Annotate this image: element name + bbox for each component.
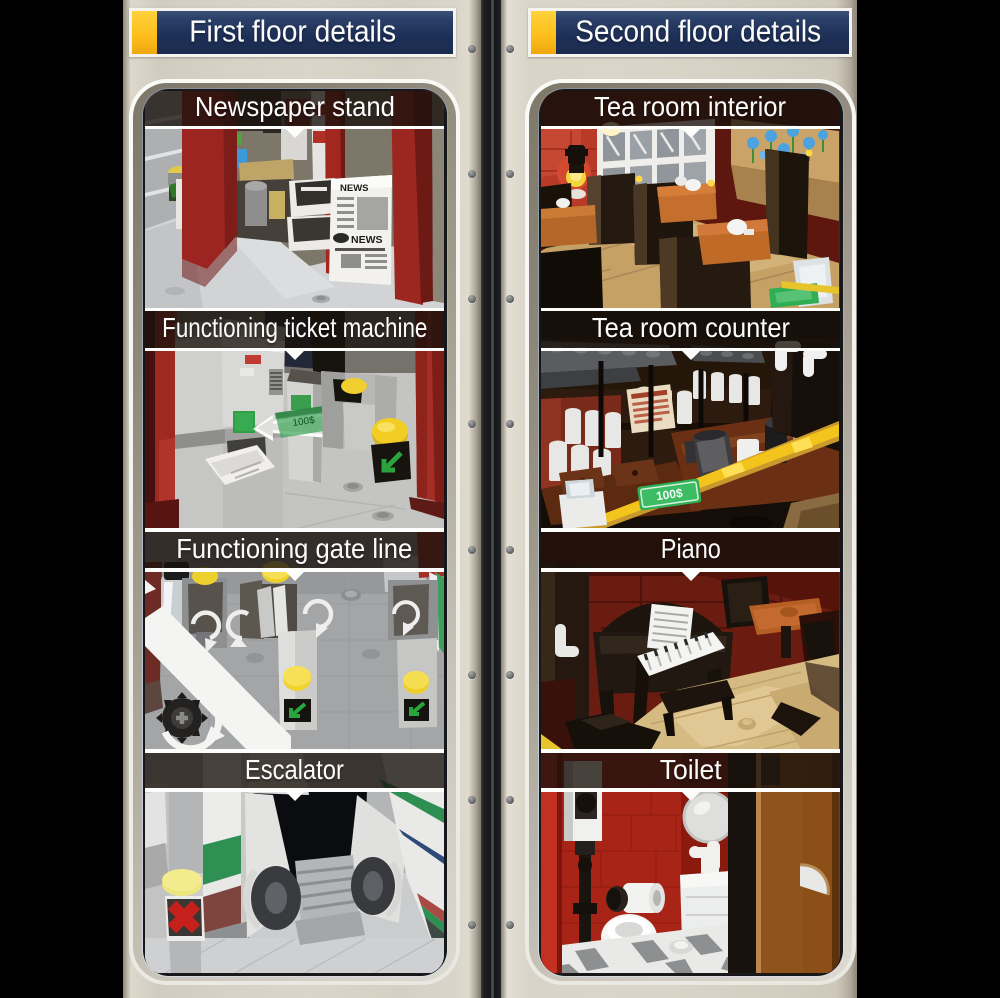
svg-text:NEWS: NEWS — [351, 234, 383, 246]
svg-text:NEWS: NEWS — [340, 183, 369, 194]
